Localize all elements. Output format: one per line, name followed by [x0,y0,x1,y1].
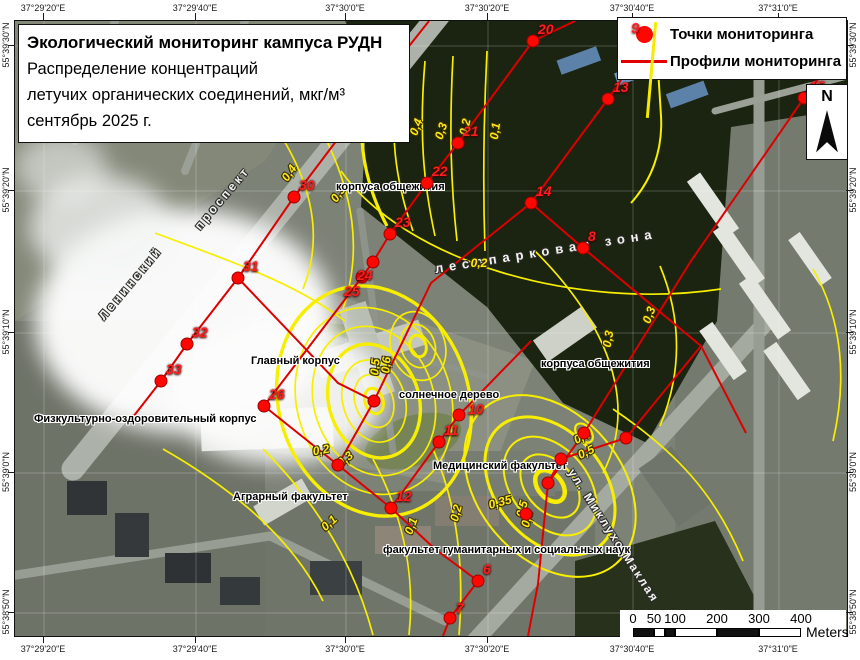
monitoring-point [332,459,345,472]
place-label: Медицинский факультет [433,460,567,472]
graticule-tick [8,190,15,191]
street-label: проспект [192,164,253,233]
contour-value-label: 0,2 [471,256,488,270]
place-label: Главный корпус [251,355,340,367]
coordinate-label: 37°29'40"E [173,3,218,13]
graticule-tick [345,13,346,20]
contour-value-label: 0,1 [487,122,503,140]
coordinate-label: 37°29'40"E [173,644,218,654]
point-number-9: 9 [631,20,639,37]
point-number: 20 [538,21,554,37]
point-number: 23 [395,214,411,230]
monitoring-point [578,427,591,440]
graticule-tick [487,636,488,643]
contour-value-label: 0,2 [447,503,465,523]
place-label: корпуса общежития [541,358,650,370]
monitoring-point [453,409,466,422]
graticule-tick [8,332,15,333]
point-number: 32 [192,324,208,340]
graticule-tick [8,45,15,46]
legend-profiles-label: Профили мониторинга [670,53,841,70]
point-number: 7 [456,600,464,616]
map-title-box: Экологический мониторинг кампуса РУДН Ра… [18,24,410,143]
point-number: 33 [166,361,182,377]
street-label: ул. Миклухо-Маклая [565,466,662,605]
legend-points-label: Точки мониторинга [670,26,813,43]
contour-value-label: 0,3 [640,305,659,325]
point-number: 13 [613,79,629,95]
scale-tick-label: 400 [790,611,812,626]
monitoring-point [555,453,568,466]
point-number: 25 [344,283,360,299]
graticule-tick [846,45,853,46]
contour-value-label: 0,35 [487,492,513,512]
graticule-tick [43,13,44,20]
point-number: 8 [588,228,596,244]
scale-unit-label: Meters [806,624,849,640]
monitoring-point [520,508,533,521]
graticule-tick [846,612,853,613]
coordinate-label: 37°30'20"E [465,3,510,13]
contour-value-label: 0,6 [378,356,393,374]
graticule-tick [43,636,44,643]
graticule-tick [846,472,853,473]
north-arrow-box: N [806,84,848,160]
point-number: 31 [243,258,259,274]
coordinate-label: 37°29'20"E [21,3,66,13]
north-arrow-icon [808,107,846,157]
contour-value-label: 0,2 [312,442,331,459]
place-label: факультет гуманитарных и социальных наук [383,544,630,556]
monitoring-point [368,395,381,408]
point-number: 6 [483,561,491,577]
scale-bar-segment [633,628,654,637]
map-date: сентябрь 2025 г. [27,108,399,134]
monitoring-point [542,477,555,490]
monitoring-profile-symbol [618,60,670,63]
coordinate-label: 37°30'40"E [610,3,655,13]
contour-value-label: 0,4 [278,162,299,184]
red-line-icon [621,60,667,63]
map-subtitle-2: летучих органических соединений, мкг/м³ [27,82,399,108]
scale-tick-label: 0 [629,611,636,626]
point-number: 30 [299,177,315,193]
graticule-tick [487,13,488,20]
point-number: 12 [396,488,412,504]
scale-tick-label: 300 [748,611,770,626]
place-label: Физкультурно-оздоровительный корпус [34,413,256,425]
coordinate-label: 37°30'20"E [465,644,510,654]
graticule-tick [195,13,196,20]
street-label: лесопарковая зона [434,226,659,276]
place-label: солнечное дерево [399,389,499,401]
graticule-tick [8,472,15,473]
coordinate-label: 37°30'0"E [325,644,365,654]
coordinate-label: 37°30'0"E [325,3,365,13]
legend-item-points: Точки мониторинга [618,22,813,46]
scale-bar-segment [654,628,665,637]
scale-bar-segment [665,628,676,637]
scale-tick-label: 200 [706,611,728,626]
point-number: 11 [444,422,459,438]
scale-bar-segment [675,628,717,637]
point-number: 21 [463,123,479,139]
scale-bar-segment [759,628,801,637]
north-label: N [807,87,847,107]
point-number: 22 [432,163,448,179]
coordinate-label: 37°31'0"E [758,644,798,654]
monitoring-point [444,612,457,625]
graticule-tick [345,636,346,643]
monitoring-point [620,432,633,445]
monitoring-point-symbol [618,26,670,43]
scale-tick-label: 100 [664,611,686,626]
map-title: Экологический мониторинг кампуса РУДН [27,30,399,56]
street-label: Ленинский [96,243,165,322]
scale-tick-label: 50 [647,611,661,626]
coordinate-label: 37°29'20"E [21,644,66,654]
graticule-tick [8,612,15,613]
graticule-tick [846,190,853,191]
map-export-page: корпуса общежитияГлавный корпуссолнечное… [0,0,860,660]
map-subtitle-1: Распределение концентраций [27,56,399,82]
point-number: 24 [357,267,373,283]
point-number: 26 [269,386,285,402]
place-label: Аграрный факультет [233,491,348,503]
graticule-tick [195,636,196,643]
graticule-tick [846,332,853,333]
contour-value-label: 0,3 [600,330,617,349]
point-number: 10 [468,401,484,417]
contour-value-label: 0,1 [318,512,340,534]
scale-bar-segment [717,628,759,637]
contour-value-label: 0,1 [402,516,421,536]
point-number: 14 [536,183,552,199]
coordinate-label: 37°31'0"E [758,3,798,13]
contour-value-label: 0,3 [432,121,450,141]
coordinate-label: 37°30'40"E [610,644,655,654]
scale-bar: Meters 050100200300400 [620,610,846,643]
